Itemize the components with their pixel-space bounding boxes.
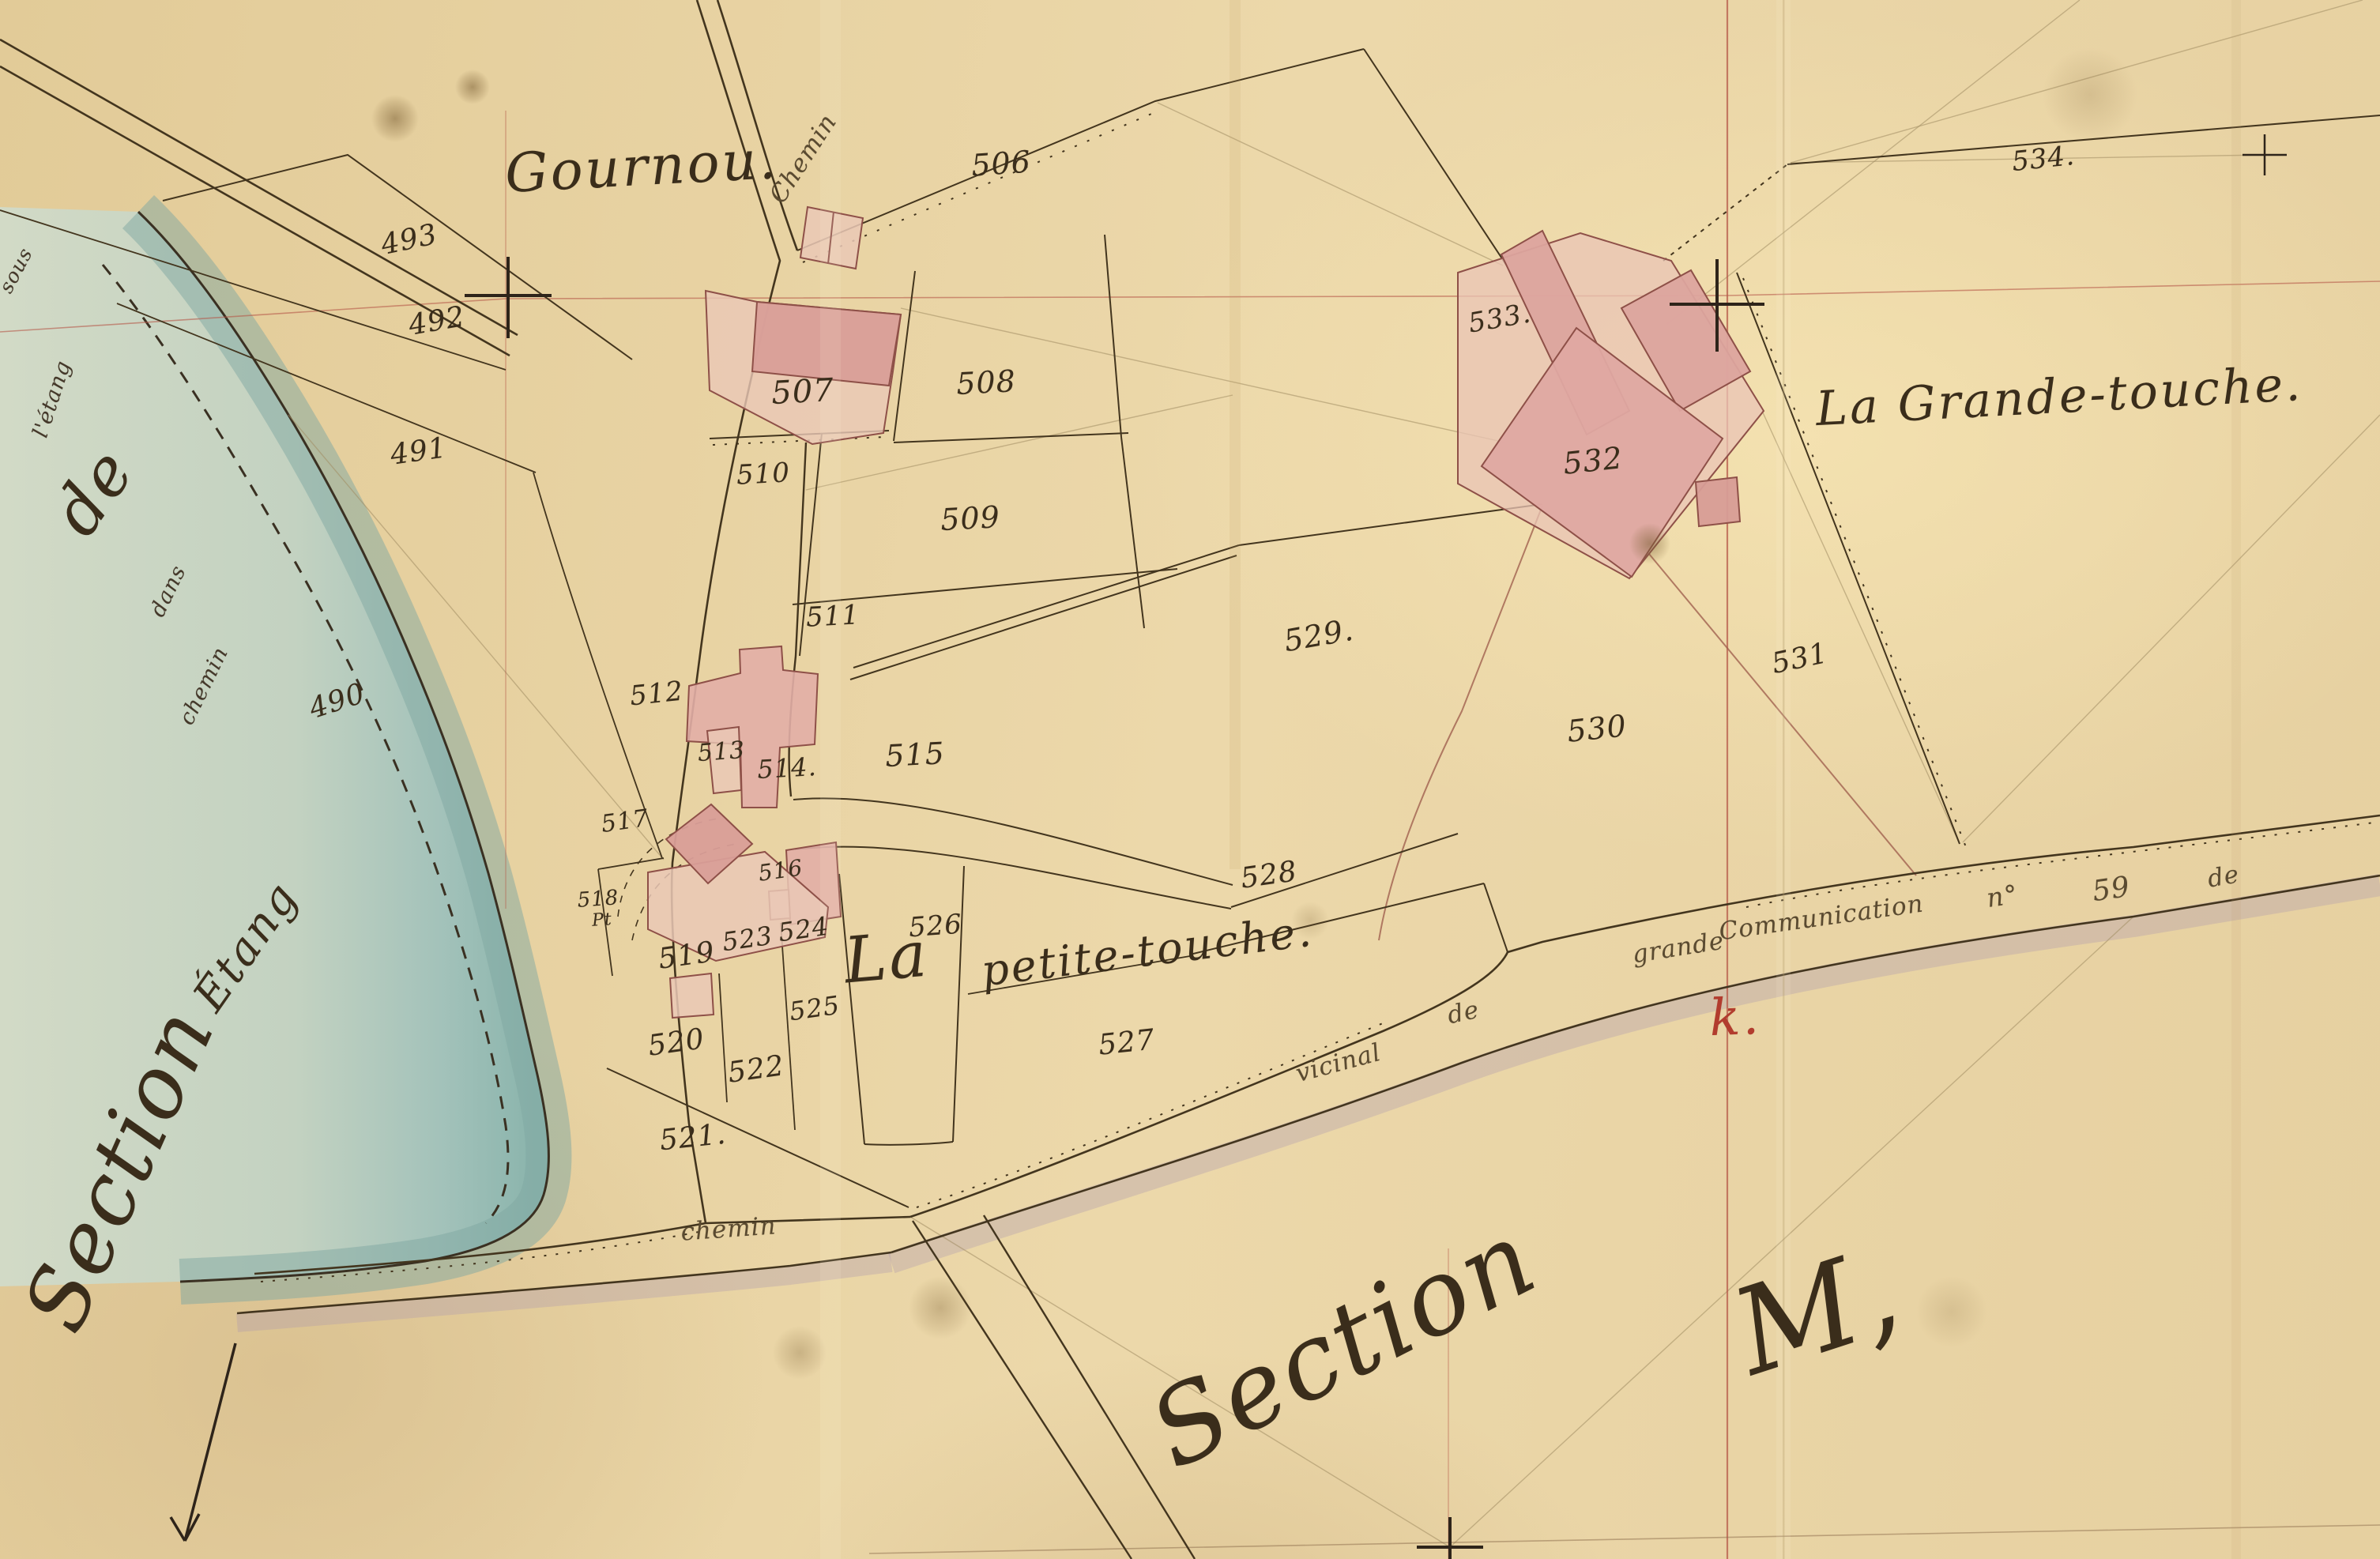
building-514-cross [687, 646, 818, 808]
buildings [648, 207, 1764, 1018]
building-519-ext [670, 973, 714, 1018]
pencil-lines [288, 0, 2380, 1547]
north-arrow [171, 1343, 235, 1541]
map-linework [0, 0, 2380, 1559]
paper-texture [371, 0, 2241, 1559]
pond [0, 207, 548, 1286]
building-513 [707, 727, 741, 793]
cadastral-map: Gournou.La Grande-touche.Lapetite-touche… [0, 0, 2380, 1559]
building-532-annex [1696, 477, 1740, 526]
